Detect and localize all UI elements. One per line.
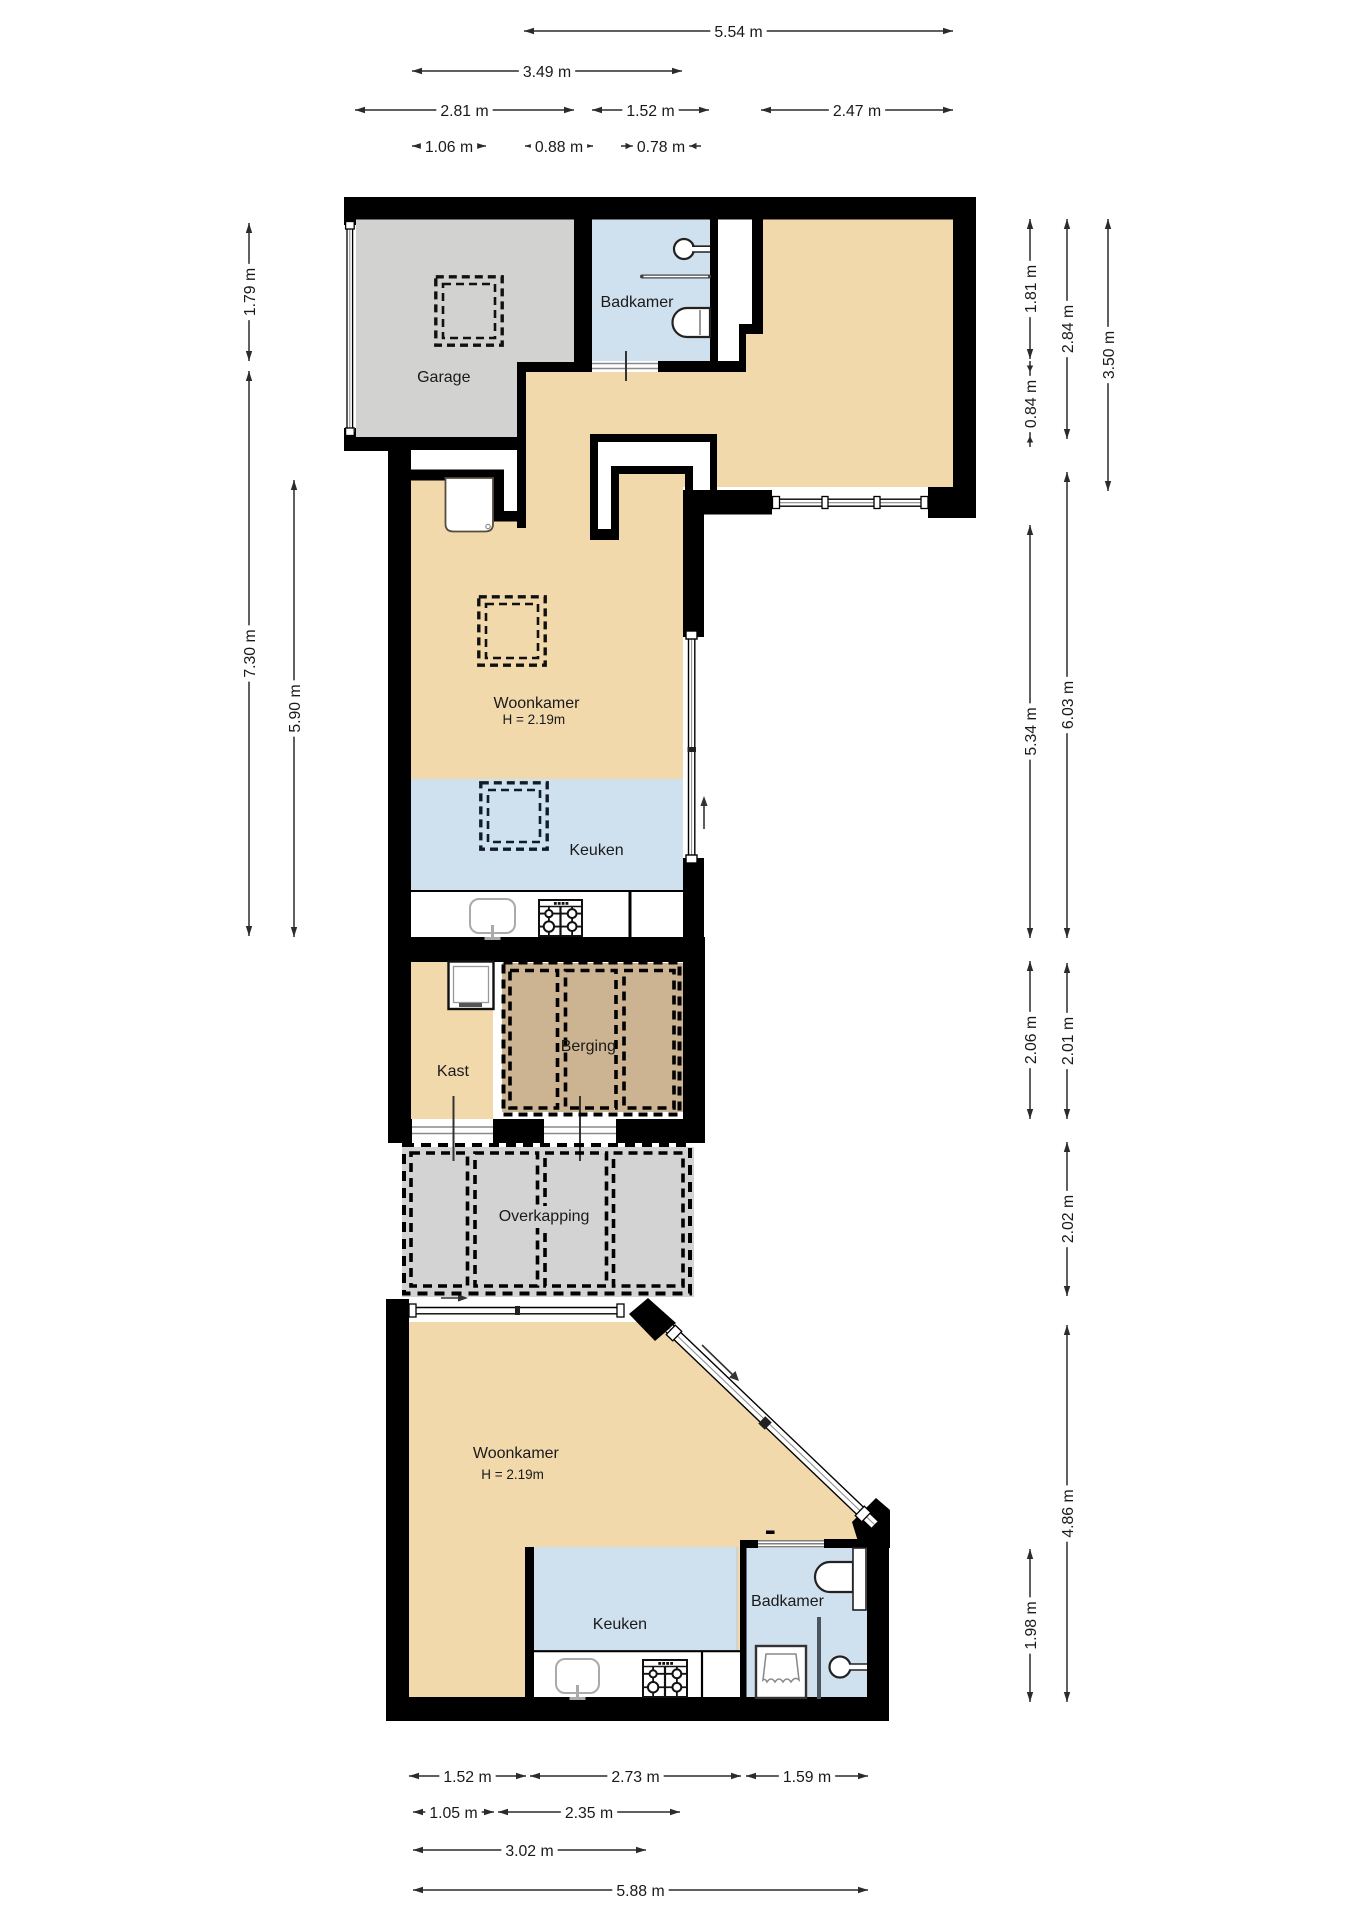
svg-text:2.06 m: 2.06 m	[1023, 1016, 1040, 1064]
svg-text:Berging: Berging	[561, 1038, 616, 1055]
svg-text:3.02 m: 3.02 m	[505, 1843, 553, 1860]
svg-text:H = 2.19m: H = 2.19m	[481, 1467, 544, 1482]
svg-text:1.52 m: 1.52 m	[626, 103, 674, 120]
svg-text:1.79 m: 1.79 m	[242, 268, 259, 316]
svg-text:Woonkamer: Woonkamer	[473, 1445, 560, 1462]
svg-text:2.73 m: 2.73 m	[611, 1769, 659, 1786]
svg-text:Keuken: Keuken	[593, 1616, 647, 1633]
svg-text:Keuken: Keuken	[569, 842, 623, 859]
svg-text:2.01 m: 2.01 m	[1060, 1017, 1077, 1065]
svg-text:Kast: Kast	[437, 1063, 470, 1080]
svg-text:2.47 m: 2.47 m	[833, 103, 881, 120]
svg-text:Woonkamer: Woonkamer	[494, 695, 581, 712]
svg-text:1.52 m: 1.52 m	[443, 1769, 491, 1786]
svg-text:5.90 m: 5.90 m	[287, 684, 304, 732]
svg-text:1.59 m: 1.59 m	[783, 1769, 831, 1786]
svg-text:0.88 m: 0.88 m	[535, 139, 583, 156]
svg-text:Overkapping: Overkapping	[499, 1208, 590, 1225]
svg-text:Badkamer: Badkamer	[601, 294, 675, 311]
svg-text:5.88 m: 5.88 m	[616, 1883, 664, 1900]
svg-text:Garage: Garage	[417, 369, 470, 386]
svg-text:5.34 m: 5.34 m	[1023, 707, 1040, 755]
svg-text:1.05 m: 1.05 m	[429, 1805, 477, 1822]
svg-text:1.81 m: 1.81 m	[1023, 265, 1040, 313]
svg-text:2.81 m: 2.81 m	[440, 103, 488, 120]
svg-text:Badkamer: Badkamer	[751, 1593, 825, 1610]
svg-text:0.84 m: 0.84 m	[1023, 380, 1040, 428]
svg-text:4.86 m: 4.86 m	[1060, 1489, 1077, 1537]
svg-text:1.06 m: 1.06 m	[425, 139, 473, 156]
svg-text:2.84 m: 2.84 m	[1060, 305, 1077, 353]
svg-text:3.49 m: 3.49 m	[523, 64, 571, 81]
svg-text:1.98 m: 1.98 m	[1023, 1601, 1040, 1649]
svg-text:2.02 m: 2.02 m	[1060, 1195, 1077, 1243]
svg-text:2.35 m: 2.35 m	[565, 1805, 613, 1822]
svg-text:H = 2.19m: H = 2.19m	[502, 712, 565, 727]
svg-text:5.54 m: 5.54 m	[714, 24, 762, 41]
svg-text:6.03 m: 6.03 m	[1060, 681, 1077, 729]
svg-text:7.30 m: 7.30 m	[242, 629, 259, 677]
svg-text:0.78 m: 0.78 m	[637, 139, 685, 156]
svg-text:3.50 m: 3.50 m	[1101, 331, 1118, 379]
